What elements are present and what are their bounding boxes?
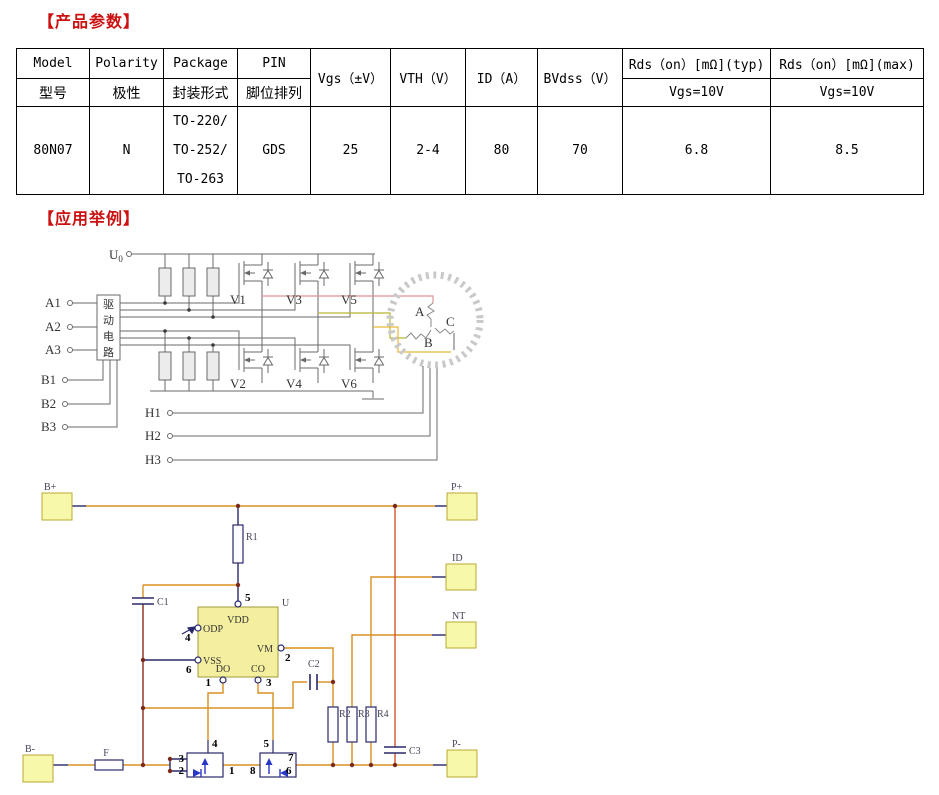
col-header-model-cn: 型号: [17, 79, 90, 107]
winding-a-label: A: [415, 304, 425, 319]
pad-bminus: [23, 755, 53, 782]
mosfet-v5-symbol: [350, 254, 384, 296]
col-header-polarity-cn: 极性: [90, 79, 164, 107]
section-title-application-examples: 【应用举例】: [38, 205, 140, 229]
driver-box-label: 驱: [103, 298, 114, 311]
hall-h3-label: H3: [145, 452, 161, 467]
table-row: 80N07 N TO-220/ TO-252/ TO-263 GDS 25 2-…: [17, 107, 924, 195]
package-line: TO-252/: [166, 136, 235, 165]
cell-pin: GDS: [238, 107, 311, 195]
cell-vgs: 25: [311, 107, 391, 195]
q2-left-pin: 8: [250, 765, 256, 777]
section-title-product-params: 【产品参数】: [38, 8, 140, 32]
input-a1-label: A1: [45, 295, 61, 310]
parameters-table: Model Polarity Package PIN Vgs（±V） VTH（V…: [16, 48, 924, 195]
cell-rds-max: 8.5: [771, 107, 924, 195]
q1-right-pin: 1: [229, 765, 235, 777]
driver-box-label: 路: [103, 346, 114, 359]
mosfet-v3-label: V3: [286, 292, 302, 307]
fuse-body: [95, 760, 123, 770]
pin-number-co: 3: [266, 677, 272, 689]
capacitor-c1-label: C1: [157, 597, 169, 608]
protection-circuit-diagram: U VDD VM ODP VSS DO CO 5 2 4 6 1 3: [20, 478, 490, 795]
cell-id: 80: [466, 107, 538, 195]
col-header-pin: PIN: [238, 49, 311, 79]
pad-pminus-label: P-: [452, 739, 461, 750]
pad-bminus-label: B-: [25, 744, 35, 755]
capacitor-c3-label: C3: [409, 746, 421, 757]
col-header-id: ID（A）: [466, 49, 538, 107]
col-header-package: Package: [164, 49, 238, 79]
phase-c-wire: [373, 327, 451, 352]
pad-nt-label: NT: [452, 611, 465, 622]
cell-model: 80N07: [17, 107, 90, 195]
cell-rds-typ: 6.8: [623, 107, 771, 195]
col-header-bvdss: BVdss（V）: [538, 49, 623, 107]
q2-gate-pin: 5: [264, 738, 270, 750]
input-b2-label: B2: [41, 396, 56, 411]
winding-b-label: B: [424, 335, 433, 350]
q1-left-bottom-pin: 2: [179, 765, 185, 777]
cell-polarity: N: [90, 107, 164, 195]
capacitor-c1: [132, 598, 154, 604]
pad-bplus: [42, 493, 72, 520]
q2-top-right-pin: 7: [288, 752, 294, 764]
resistor-r4-label: R4: [377, 709, 389, 720]
col-header-model: Model: [17, 49, 90, 79]
motor-drive-circuit-diagram: 驱 动 电 路 U0 A1 A2 A3 B1 B2 B3 H1 H2 H3 V1…: [25, 240, 505, 476]
mosfet-v1-label: V1: [230, 292, 246, 307]
col-header-pin-cn: 脚位排列: [238, 79, 311, 107]
mosfet-v1-symbol: [239, 254, 273, 296]
mosfet-v3-symbol: [295, 254, 329, 296]
circuit1-resistors: [159, 268, 219, 380]
cell-package: TO-220/ TO-252/ TO-263: [164, 107, 238, 195]
cell-bvdss: 70: [538, 107, 623, 195]
pin-number-odp: 4: [185, 632, 191, 644]
col-header-vth: VTH（V）: [391, 49, 466, 107]
pin-number-vdd: 5: [245, 592, 251, 604]
col-header-package-cn: 封装形式: [164, 79, 238, 107]
driver-box-label: 电: [103, 330, 114, 343]
package-line: TO-263: [166, 165, 235, 194]
pad-pplus-label: P+: [451, 482, 463, 493]
mosfet-v2-label: V2: [230, 376, 246, 391]
input-b1-label: B1: [41, 372, 56, 387]
pad-nt: [446, 622, 476, 648]
supply-label: U0: [109, 247, 123, 264]
pin-number-do: 1: [206, 677, 212, 689]
mosfet-v6-label: V6: [341, 376, 357, 391]
fuse-label: F: [103, 748, 109, 759]
ic-ref-label: U: [282, 598, 290, 609]
q1-gate-pin: 4: [212, 738, 218, 750]
q1-left-top-pin: 3: [179, 753, 185, 765]
col-header-polarity: Polarity: [90, 49, 164, 79]
pad-id: [446, 564, 476, 590]
cell-vth: 2-4: [391, 107, 466, 195]
winding-c-label: C: [446, 314, 455, 329]
pad-bplus-label: B+: [44, 482, 57, 493]
mosfet-v5-label: V5: [341, 292, 357, 307]
input-a3-label: A3: [45, 342, 61, 357]
package-line: TO-220/: [166, 107, 235, 136]
hall-h1-label: H1: [145, 405, 161, 420]
resistor-r3-label: R3: [358, 709, 370, 720]
ic-vdd-label: VDD: [227, 615, 249, 626]
q2-right-pin: 6: [286, 765, 292, 777]
ic-do-label: DO: [216, 664, 230, 675]
ic-vm-label: VM: [257, 644, 273, 655]
input-a2-label: A2: [45, 319, 61, 334]
rds-typ-condition: Vgs=10V: [623, 79, 771, 107]
pad-pminus: [447, 750, 477, 777]
hall-h2-label: H2: [145, 428, 161, 443]
capacitor-c2-label: C2: [308, 659, 320, 670]
capacitor-c2: [310, 674, 317, 690]
ic-co-label: CO: [251, 664, 265, 675]
resistor-r1-label: R1: [246, 532, 258, 543]
datasheet-page: 【产品参数】 Model Polarity Package PIN Vgs（±V…: [0, 0, 939, 795]
mosfet-q1-symbol: [187, 740, 223, 777]
pin-number-vss: 6: [186, 664, 192, 676]
resistor-r2-label: R2: [339, 709, 351, 720]
ic-odp-label: ODP: [203, 624, 223, 635]
col-header-rds-max: Rds（on）[mΩ](max): [771, 49, 924, 79]
driver-box-label: 动: [103, 314, 114, 327]
rds-max-condition: Vgs=10V: [771, 79, 924, 107]
capacitor-c3: [384, 747, 406, 753]
pad-id-label: ID: [452, 553, 463, 564]
pin-number-vm: 2: [285, 652, 291, 664]
input-b3-label: B3: [41, 419, 56, 434]
col-header-vgs: Vgs（±V）: [311, 49, 391, 107]
col-header-rds-typ: Rds（on）[mΩ](typ): [623, 49, 771, 79]
pad-pplus: [447, 493, 477, 520]
mosfet-v4-label: V4: [286, 376, 302, 391]
